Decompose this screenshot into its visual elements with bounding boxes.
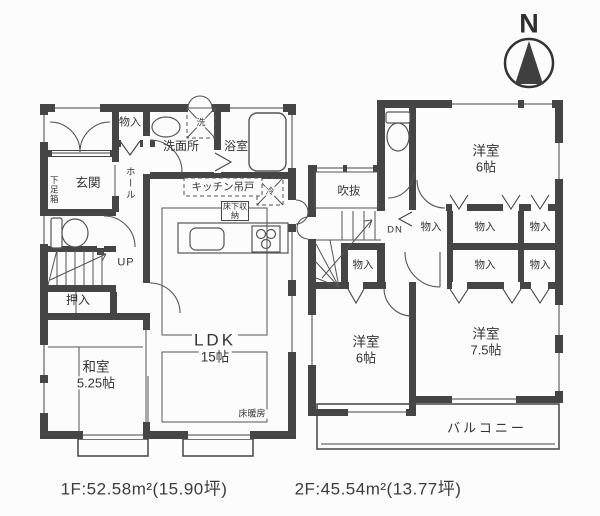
label-kitchen-cupboard: キッチン吊戸 (192, 182, 255, 193)
bay-windows (78, 439, 253, 456)
room-label-entrance: 玄関 (75, 177, 100, 190)
caption-floor2-area: 2F:45.54m²(13.77坪) (295, 475, 462, 500)
toilet-1f (51, 218, 88, 248)
room-label-western-right-size: 7.5帖 (470, 344, 501, 357)
floorplan-page: N 物入 洗面所 洗 浴室 玄関 下足箱 ホール キッチン吊戸 床下収納 冷 U… (0, 0, 600, 516)
fridge-mark: 冷 (264, 187, 277, 196)
kitchen-counter (178, 223, 288, 253)
room-label-bath: 浴室 (224, 140, 248, 152)
toilet-2f (386, 112, 410, 151)
room-label-western-top-size: 6帖 (476, 161, 496, 174)
closet-label-5: 物入 (475, 260, 496, 271)
label-stairs-down: DN (387, 225, 403, 235)
closet-label-6: 物入 (530, 260, 551, 271)
closet-label-1: 物入 (421, 222, 442, 233)
stairs-1f (48, 250, 106, 285)
washbasin (152, 117, 180, 137)
washer-mark: 洗 (194, 119, 207, 128)
bathtub (249, 113, 286, 171)
label-balcony: バルコニー (447, 422, 527, 435)
room-label-western-left-size: 6帖 (356, 352, 376, 365)
caption-floor1-area: 1F:52.58m²(15.90坪) (61, 475, 228, 500)
room-label-void: 吹抜 (338, 186, 361, 198)
closet-label-4: 物入 (353, 260, 374, 271)
room-label-western-left: 洋室 (353, 335, 380, 349)
closet-label-2: 物入 (475, 222, 496, 233)
compass-icon (505, 39, 553, 87)
room-label-japanese-room: 和室 (81, 360, 112, 374)
closet-label-3: 物入 (530, 222, 551, 233)
label-floor-heating: 床暖房 (236, 410, 267, 419)
room-label-western-top: 洋室 (473, 144, 500, 158)
label-stairs-up: UP (117, 258, 134, 269)
room-label-washroom: 洗面所 (163, 140, 199, 152)
room-label-closet-1f: 物入 (119, 118, 141, 129)
room-label-oshiire: 押入 (66, 294, 90, 306)
label-underfloor-storage: 床下収納 (221, 201, 249, 221)
room-label-western-right: 洋室 (473, 327, 500, 341)
label-shoe-cabinet: 下足箱 (50, 176, 59, 205)
room-label-hall: ホール (124, 167, 134, 202)
compass-north-label: N (519, 9, 539, 40)
room-label-ldk-size: 15帖 (199, 350, 232, 364)
floorplan-graphics (0, 0, 600, 516)
floor2-walls (308, 100, 563, 416)
room-label-ldk: LDK (192, 332, 238, 349)
room-label-japanese-room-size: 5.25帖 (75, 377, 117, 390)
